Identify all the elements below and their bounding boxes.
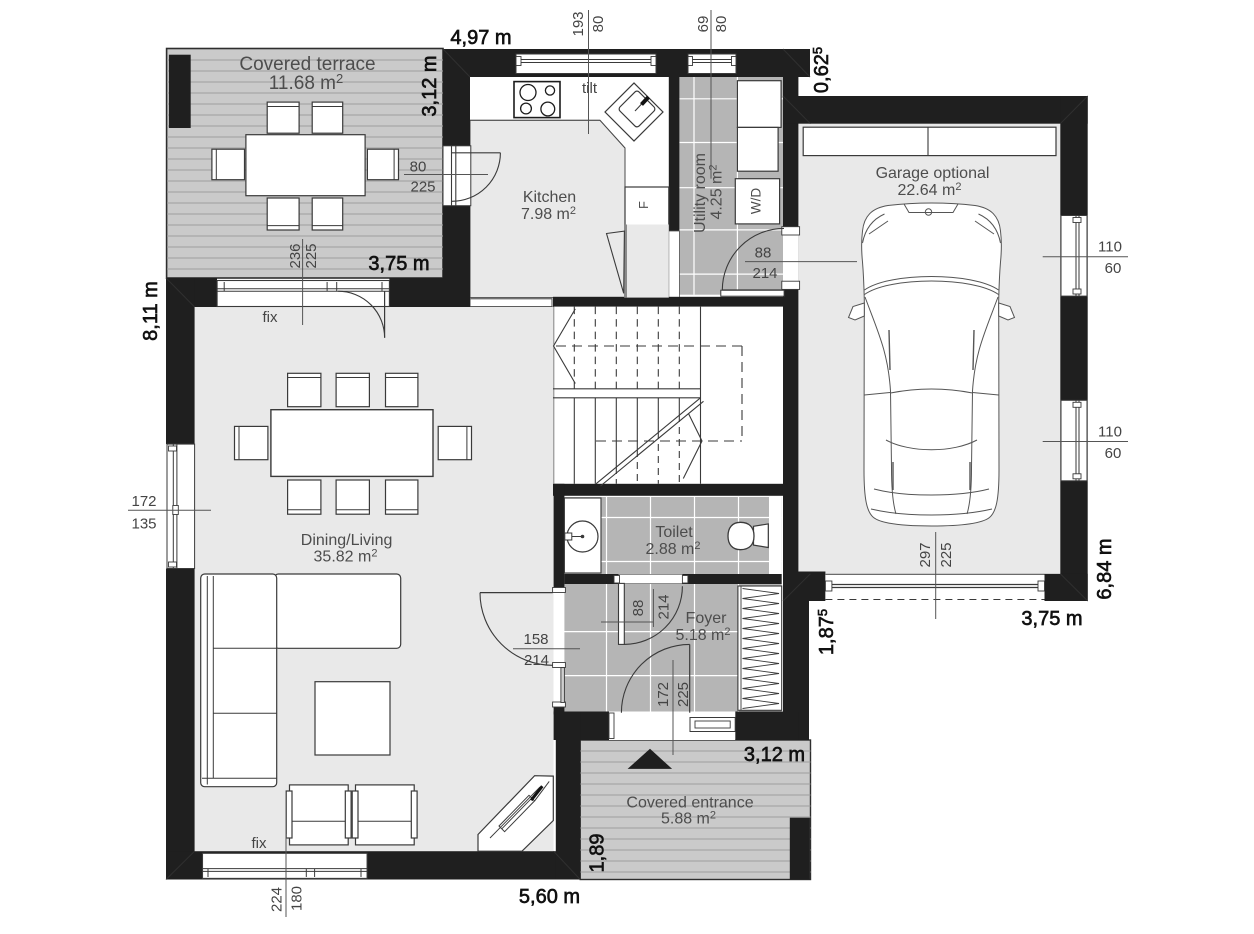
- svg-text:180: 180: [289, 886, 306, 911]
- svg-text:80: 80: [590, 16, 607, 33]
- svg-text:60: 60: [1105, 260, 1122, 277]
- svg-text:80: 80: [713, 16, 730, 33]
- svg-text:4,97 m: 4,97 m: [450, 27, 511, 49]
- svg-text:3,12 m: 3,12 m: [419, 55, 441, 116]
- svg-text:5.88 m2: 5.88 m2: [661, 810, 716, 828]
- svg-text:1,89: 1,89: [587, 834, 609, 873]
- svg-text:Covered entrance: Covered entrance: [626, 795, 753, 812]
- svg-text:88: 88: [755, 245, 772, 262]
- svg-text:3,12 m: 3,12 m: [744, 744, 805, 766]
- svg-text:5,60 m: 5,60 m: [519, 886, 580, 908]
- svg-text:2.88 m2: 2.88 m2: [645, 540, 700, 558]
- svg-text:110: 110: [1098, 239, 1122, 256]
- svg-text:tilt: tilt: [582, 80, 598, 97]
- svg-text:88: 88: [630, 600, 647, 617]
- svg-text:172: 172: [131, 493, 156, 510]
- svg-text:69: 69: [695, 16, 712, 33]
- svg-text:214: 214: [656, 594, 673, 619]
- svg-text:Toilet: Toilet: [655, 524, 693, 541]
- svg-text:225: 225: [675, 682, 692, 707]
- svg-text:193: 193: [570, 11, 587, 36]
- svg-text:135: 135: [131, 516, 156, 533]
- svg-text:8,11 m: 8,11 m: [140, 281, 162, 341]
- svg-text:297: 297: [917, 542, 934, 567]
- svg-text:225: 225: [938, 542, 955, 567]
- svg-text:224: 224: [269, 887, 286, 912]
- svg-text:Garage optional: Garage optional: [876, 165, 990, 182]
- svg-text:4.25 m2: 4.25 m2: [708, 164, 726, 219]
- svg-text:Dining/Living: Dining/Living: [301, 532, 393, 549]
- svg-text:fix: fix: [263, 309, 279, 326]
- svg-text:60: 60: [1105, 445, 1122, 462]
- svg-text:Kitchen: Kitchen: [523, 189, 576, 206]
- svg-text:236: 236: [287, 243, 304, 268]
- svg-text:F: F: [636, 201, 651, 209]
- svg-text:22.64 m2: 22.64 m2: [898, 181, 962, 199]
- svg-text:11.68 m2: 11.68 m2: [269, 71, 343, 94]
- svg-text:214: 214: [524, 652, 549, 669]
- svg-text:W/D: W/D: [749, 188, 764, 214]
- svg-text:5.18 m2: 5.18 m2: [675, 626, 730, 644]
- svg-text:Covered terrace: Covered terrace: [239, 54, 375, 75]
- svg-text:Foyer: Foyer: [686, 610, 728, 627]
- svg-text:Utility room: Utility room: [692, 153, 709, 233]
- svg-text:7.98 m2: 7.98 m2: [521, 205, 576, 223]
- svg-text:6,84 m: 6,84 m: [1094, 538, 1116, 599]
- svg-text:172: 172: [655, 682, 672, 707]
- svg-text:225: 225: [410, 179, 435, 196]
- svg-text:214: 214: [752, 265, 777, 282]
- svg-text:fix: fix: [252, 835, 268, 852]
- svg-text:158: 158: [523, 631, 548, 648]
- svg-text:80: 80: [410, 159, 427, 176]
- svg-text:110: 110: [1098, 424, 1122, 441]
- svg-text:3,75 m: 3,75 m: [368, 253, 429, 275]
- svg-text:35.82 m2: 35.82 m2: [314, 548, 378, 566]
- svg-text:3,75 m: 3,75 m: [1021, 608, 1082, 630]
- svg-text:225: 225: [303, 243, 320, 268]
